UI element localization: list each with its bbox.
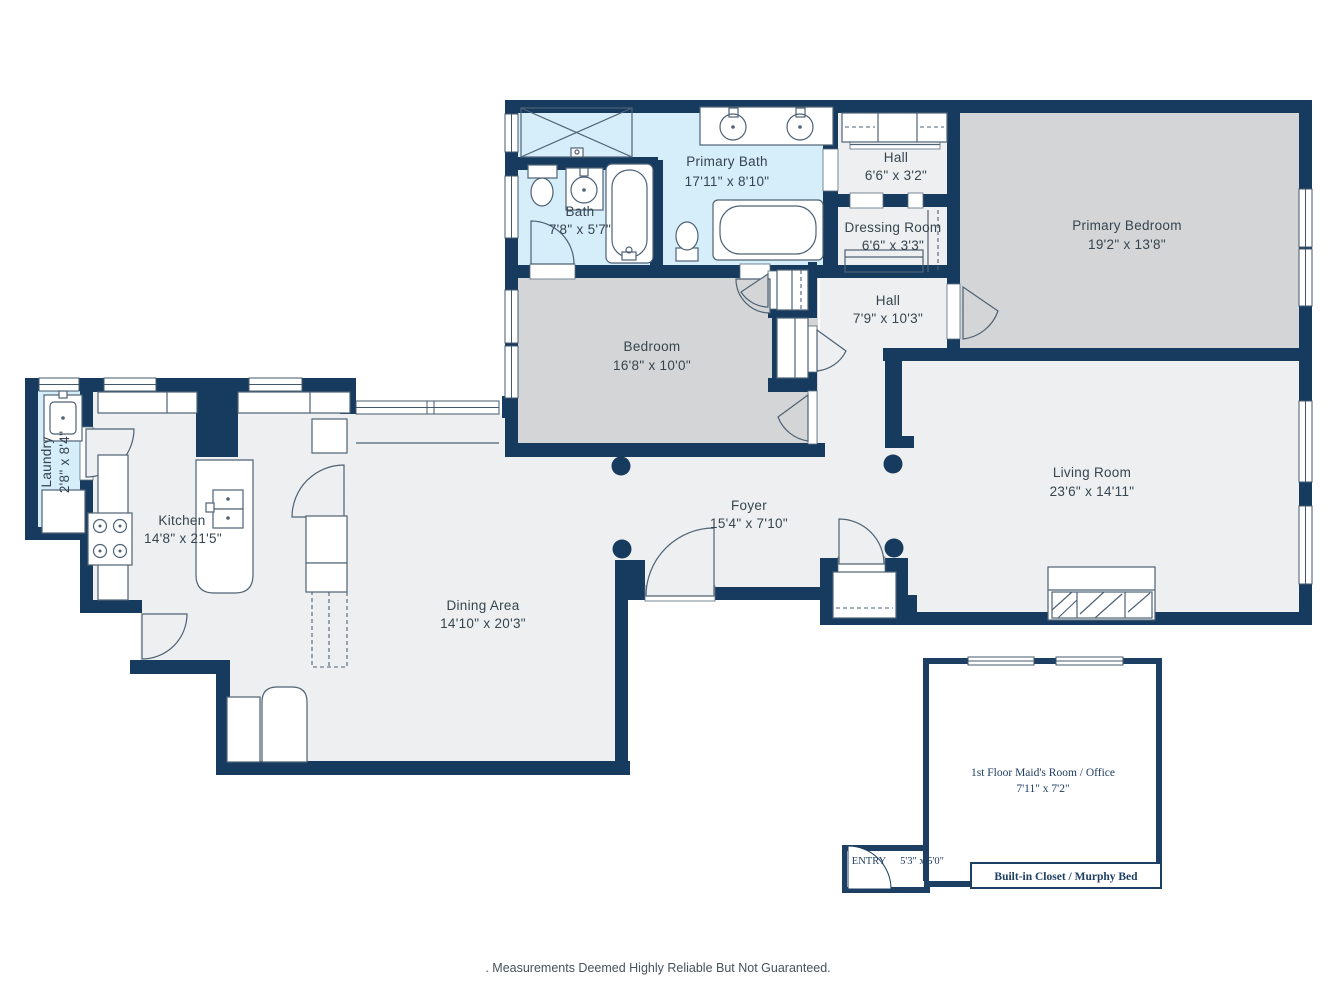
door-swing	[848, 846, 891, 889]
counter	[238, 392, 350, 413]
label-dining-area-name: Dining Area	[446, 598, 519, 613]
label-hall-dims: 7'9" x 10'3"	[853, 311, 923, 326]
counter	[98, 392, 197, 413]
label-hall-top-name: Hall	[884, 150, 908, 165]
dining-furniture	[227, 687, 307, 762]
floor-plan-page: Primary Bath 17'11" x 8'10" Hall 6'6" x …	[0, 0, 1333, 1000]
column	[612, 457, 631, 476]
label-kitchen-dims: 14'8" x 21'5"	[144, 531, 222, 546]
bedroom-closets	[777, 270, 808, 378]
label-bedroom-name: Bedroom	[624, 339, 681, 354]
label-primary-bedroom-dims: 19'2" x 13'8"	[1088, 237, 1166, 252]
label-foyer-dims: 15'4" x 7'10"	[710, 516, 788, 531]
window	[1299, 189, 1312, 247]
label-bath-dims: 7'8" x 5'7"	[549, 222, 611, 237]
floor-plan-drawing: Primary Bath 17'11" x 8'10" Hall 6'6" x …	[0, 0, 1333, 1000]
column	[885, 539, 904, 558]
label-kitchen-name: Kitchen	[158, 513, 205, 528]
label-primary-bath-name: Primary Bath	[686, 154, 768, 169]
window	[104, 378, 156, 391]
label-primary-bedroom-name: Primary Bedroom	[1072, 218, 1182, 233]
coat-closet	[833, 572, 896, 618]
label-laundry-name: Laundry	[39, 437, 54, 488]
fireplace	[1048, 567, 1155, 620]
window	[249, 378, 302, 391]
label-laundry-dims: 2'8" x 8'4"	[57, 431, 72, 493]
hall-closet	[842, 113, 947, 145]
furniture	[262, 687, 307, 762]
label-dining-area-dims: 14'10" x 20'3"	[440, 616, 526, 631]
furniture	[227, 697, 260, 762]
window	[505, 176, 518, 238]
window	[356, 401, 499, 414]
window	[1299, 401, 1312, 482]
column	[884, 455, 903, 474]
label-bedroom-dims: 16'8" x 10'0"	[613, 358, 691, 373]
bathtub	[713, 200, 823, 260]
label-living-room-name: Living Room	[1053, 465, 1131, 480]
label-foyer-name: Foyer	[731, 498, 767, 513]
window	[1056, 657, 1123, 665]
label-entry-name: ENTRY	[852, 856, 887, 867]
label-built-in-closet: Built-in Closet / Murphy Bed	[994, 871, 1138, 883]
label-dressing-room-dims: 6'6" x 3'3"	[862, 238, 924, 253]
label-living-room-dims: 23'6" x 14'11"	[1050, 484, 1135, 499]
label-primary-bath-dims: 17'11" x 8'10"	[685, 174, 770, 189]
window	[968, 657, 1034, 665]
window	[39, 378, 79, 391]
column	[613, 540, 632, 559]
toilet	[676, 222, 698, 261]
label-hall-top-dims: 6'6" x 3'2"	[865, 168, 927, 183]
double-vanity	[700, 107, 833, 145]
label-dressing-room-name: Dressing Room	[845, 220, 942, 235]
label-bath-name: Bath	[566, 204, 595, 219]
label-entry-dims: 5'3" x 5'0"	[900, 856, 944, 867]
disclaimer-text: . Measurements Deemed Highly Reliable Bu…	[485, 961, 830, 975]
window	[1299, 249, 1312, 306]
window	[1299, 506, 1312, 584]
label-maids-room-dims: 7'11" x 7'2"	[1016, 783, 1069, 795]
window	[505, 346, 518, 398]
washer	[42, 490, 85, 533]
bathtub	[606, 164, 653, 263]
label-maids-room-name: 1st Floor Maid's Room / Office	[971, 767, 1115, 779]
window	[505, 114, 518, 152]
label-hall-name: Hall	[876, 293, 900, 308]
stove-icon	[88, 513, 132, 565]
window	[505, 290, 518, 343]
